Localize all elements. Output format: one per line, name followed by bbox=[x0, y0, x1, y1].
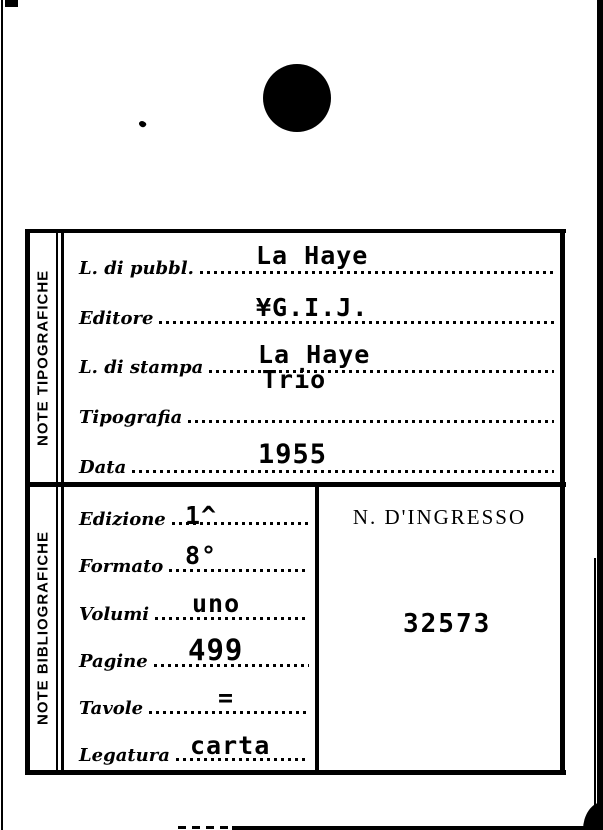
section-label-note-bibliografiche: NOTE BIBLIOGRAFICHE bbox=[30, 487, 56, 770]
field-label: Editore bbox=[79, 310, 159, 328]
field-row-formato: Formato 8° bbox=[66, 534, 315, 581]
field-row-volumi: Volumi uno bbox=[66, 581, 315, 628]
hole-punch-icon bbox=[263, 64, 331, 132]
field-label: L. di pubbl. bbox=[79, 260, 200, 278]
typed-value: La Haye bbox=[258, 342, 370, 367]
typed-value: 1955 bbox=[258, 441, 327, 468]
field-label: Volumi bbox=[79, 606, 155, 624]
dotted-rule bbox=[132, 470, 554, 473]
field-label: L. di stampa bbox=[79, 359, 209, 377]
field-row-legatura: Legatura carta bbox=[66, 723, 315, 770]
field-row-tipografia: Tipografia Trio bbox=[66, 382, 560, 432]
typed-value: ¥G.I.J. bbox=[256, 295, 368, 320]
field-row-edizione: Edizione 1^ bbox=[66, 487, 315, 534]
field-row-data: Data 1955 bbox=[66, 432, 560, 482]
dotted-rule bbox=[188, 420, 554, 423]
ingresso-heading: N. D'INGRESSO bbox=[319, 505, 560, 530]
typed-value: 499 bbox=[188, 636, 243, 665]
typographic-fields: L. di pubbl. La Haye Editore ¥G.I.J. L. … bbox=[66, 233, 560, 482]
field-label: Data bbox=[79, 459, 132, 477]
section-label-note-tipografiche: NOTE TIPOGRAFICHE bbox=[30, 233, 56, 482]
field-label: Legatura bbox=[79, 747, 176, 765]
table-border-bottom bbox=[25, 770, 566, 775]
typed-value: 1^ bbox=[185, 503, 217, 528]
side-column-rule-thin bbox=[56, 233, 58, 770]
library-catalog-card-scan: NOTE TIPOGRAFICHE NOTE BIBLIOGRAFICHE L.… bbox=[0, 0, 603, 830]
scan-edge-bottom bbox=[232, 826, 603, 830]
bibliographic-fields: Edizione 1^ Formato 8° Volumi uno Pagine… bbox=[66, 487, 315, 770]
typed-value: La Haye bbox=[256, 243, 368, 268]
field-row-tavole: Tavole = bbox=[66, 676, 315, 723]
typed-value: 8° bbox=[185, 543, 217, 568]
scan-edge-right bbox=[597, 0, 603, 830]
scan-edge-bottom-dashes bbox=[178, 826, 228, 829]
field-label: Tavole bbox=[79, 700, 149, 718]
ingresso-number: 32573 bbox=[403, 609, 491, 639]
field-row-pagine: Pagine 499 bbox=[66, 629, 315, 676]
ingresso-cell: N. D'INGRESSO 32573 bbox=[319, 487, 560, 770]
scan-corner-mark-top-left bbox=[5, 0, 18, 7]
field-row-luogo-pubblicazione: L. di pubbl. La Haye bbox=[66, 233, 560, 283]
typed-value: carta bbox=[190, 733, 270, 758]
dotted-rule bbox=[209, 370, 554, 373]
field-label: Pagine bbox=[79, 653, 154, 671]
scan-corner-bottom-right bbox=[583, 802, 603, 830]
field-label: Tipografia bbox=[79, 409, 188, 427]
typed-value: = bbox=[218, 685, 234, 710]
typed-value: Trio bbox=[262, 367, 326, 392]
scan-edge-right-inner-line bbox=[594, 558, 596, 830]
typed-value: uno bbox=[192, 591, 240, 616]
table-border-right bbox=[560, 229, 565, 775]
dotted-rule bbox=[200, 271, 554, 274]
ink-speck bbox=[138, 119, 147, 128]
scan-edge-left bbox=[1, 0, 3, 830]
field-label: Edizione bbox=[79, 511, 172, 529]
side-column-rule-thick bbox=[61, 233, 64, 770]
field-label: Formato bbox=[79, 558, 169, 576]
field-row-editore: Editore ¥G.I.J. bbox=[66, 283, 560, 333]
